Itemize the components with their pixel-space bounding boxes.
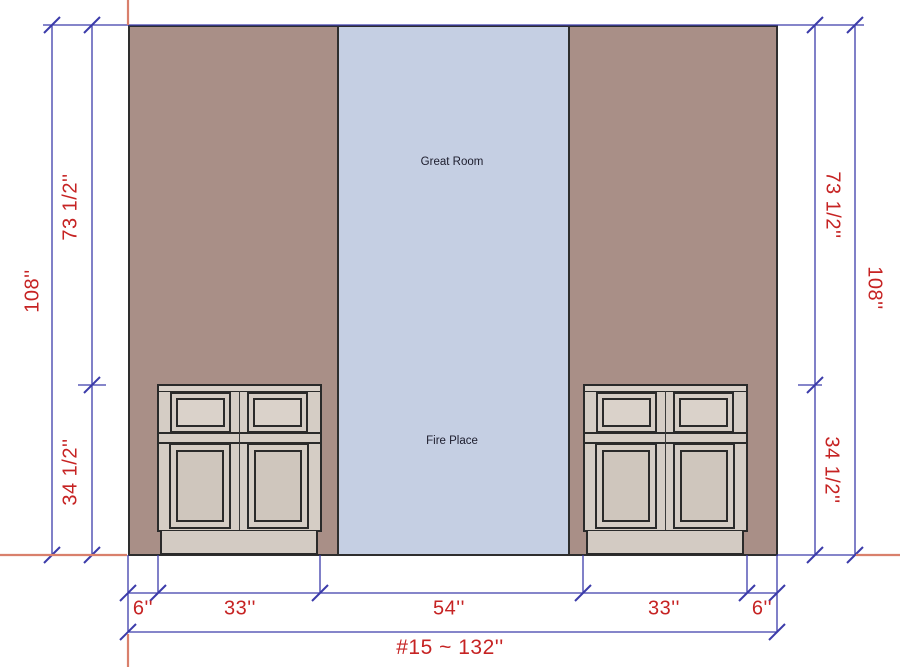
cabinet-door	[595, 443, 657, 529]
base-cabinet-right[interactable]	[583, 384, 748, 555]
door-panel	[602, 450, 650, 522]
cabinet-toe-kick	[160, 530, 318, 555]
dim-left-upper[interactable]: 73 1/2''	[60, 173, 83, 240]
drawer-front	[673, 392, 734, 433]
cabinet-door	[247, 443, 309, 529]
dim-left-overall[interactable]: 108''	[22, 269, 45, 313]
cabinet-door	[169, 443, 231, 529]
door-gap-line	[665, 391, 666, 530]
drawer-front	[170, 392, 231, 433]
cabinet-face-frame	[157, 384, 322, 532]
dim-bottom-6-right[interactable]: 6''	[752, 598, 772, 621]
door-panel	[176, 450, 224, 522]
dim-right-overall[interactable]: 108''	[863, 266, 886, 310]
dim-right-upper[interactable]: 73 1/2''	[821, 171, 844, 238]
fire-place-label[interactable]: Fire Place	[426, 435, 478, 447]
drawer-panel	[176, 398, 225, 427]
fireplace-chase[interactable]	[337, 27, 570, 556]
cabinet-toe-kick	[586, 530, 744, 555]
drawer-panel	[602, 398, 651, 427]
dim-bottom-6-left[interactable]: 6''	[133, 598, 153, 621]
base-cabinet-left[interactable]	[157, 384, 322, 555]
dim-bottom-33-right[interactable]: 33''	[648, 598, 680, 621]
drawer-panel	[253, 398, 302, 427]
drawer-front	[596, 392, 657, 433]
cabinet-door	[673, 443, 735, 529]
cabinet-face-frame	[583, 384, 748, 532]
dim-left-lower[interactable]: 34 1/2''	[60, 438, 83, 505]
dim-bottom-54[interactable]: 54''	[433, 598, 465, 621]
door-gap-line	[239, 391, 240, 530]
dim-right-lower[interactable]: 34 1/2''	[820, 436, 843, 503]
dim-overall-width[interactable]: #15 ~ 132''	[396, 636, 504, 660]
elevation-drawing-canvas: Great Room Fire Place	[0, 0, 900, 667]
dim-bottom-33-left[interactable]: 33''	[224, 598, 256, 621]
great-room-label[interactable]: Great Room	[421, 156, 484, 168]
door-panel	[680, 450, 728, 522]
drawer-panel	[679, 398, 728, 427]
drawer-front	[247, 392, 308, 433]
door-panel	[254, 450, 302, 522]
